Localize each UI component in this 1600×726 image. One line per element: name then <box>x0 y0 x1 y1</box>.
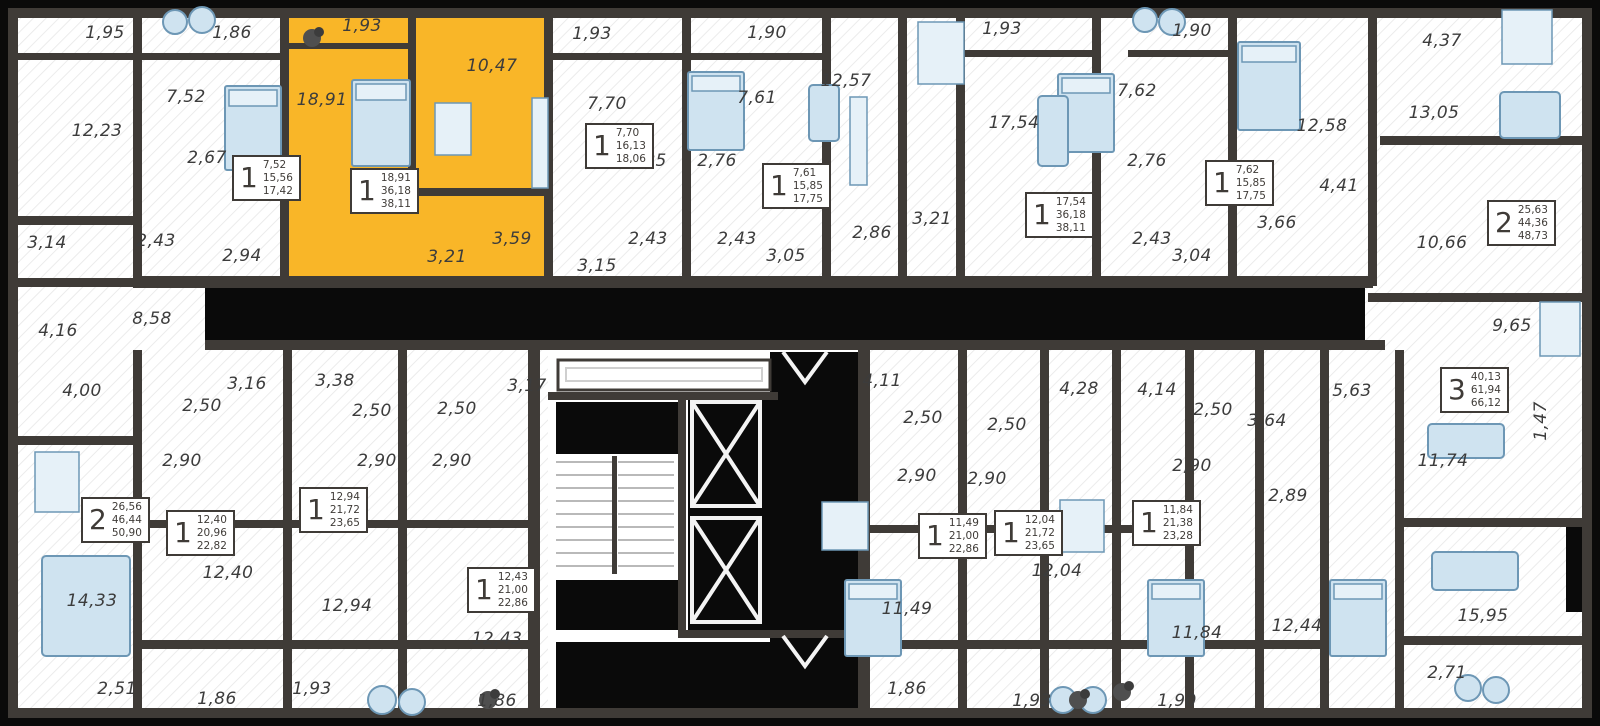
table-icon <box>918 22 964 84</box>
area-value: 23,28 <box>1163 530 1193 543</box>
elevator-icon <box>692 518 760 622</box>
area-value: 12,43 <box>498 571 528 584</box>
bed-icon <box>688 72 744 150</box>
area-value: 61,94 <box>1471 384 1501 397</box>
sofa-icon <box>42 556 130 656</box>
apartment-stat-box[interactable]: 112,4321,0022,86 <box>467 567 536 613</box>
chair-icon <box>1133 8 1157 32</box>
area-value: 15,56 <box>263 172 293 185</box>
room-count: 1 <box>1213 169 1231 197</box>
area-value: 22,82 <box>197 540 227 553</box>
area-value: 17,54 <box>1056 196 1086 209</box>
area-value: 12,94 <box>330 491 360 504</box>
area-value: 17,75 <box>1236 190 1266 203</box>
area-value: 36,18 <box>1056 209 1086 222</box>
area-value: 21,72 <box>1025 527 1055 540</box>
room-count: 1 <box>593 132 611 160</box>
bed-icon <box>845 580 901 656</box>
room-count: 1 <box>1033 201 1051 229</box>
area-value: 12,04 <box>1025 514 1055 527</box>
area-value: 20,96 <box>197 527 227 540</box>
area-value: 17,75 <box>793 193 823 206</box>
area-value: 46,44 <box>112 514 142 527</box>
area-value: 15,85 <box>793 180 823 193</box>
room-count: 1 <box>1002 519 1020 547</box>
area-value: 15,85 <box>1236 177 1266 190</box>
apartment-stat-box[interactable]: 111,8421,3823,28 <box>1132 500 1201 546</box>
area-value: 22,86 <box>949 543 979 556</box>
selected-apartment[interactable] <box>283 8 547 286</box>
area-value: 11,49 <box>949 517 979 530</box>
apartment-stat-box[interactable]: 112,4020,9622,82 <box>166 510 235 556</box>
counter-icon <box>850 97 867 185</box>
area-value: 7,52 <box>263 159 293 172</box>
area-value: 12,40 <box>197 514 227 527</box>
sofa-icon <box>1432 552 1518 590</box>
area-value: 50,90 <box>112 527 142 540</box>
table-icon <box>1540 302 1580 356</box>
area-value: 23,65 <box>330 517 360 530</box>
room-count: 1 <box>1140 509 1158 537</box>
room-count: 1 <box>307 496 325 524</box>
area-value: 18,06 <box>616 153 646 166</box>
area-value: 7,70 <box>616 127 646 140</box>
area-value: 40,13 <box>1471 371 1501 384</box>
sofa-icon <box>809 85 839 141</box>
floorplan-stage: 1,951,861,9310,4718,917,5212,232,673,142… <box>0 0 1600 726</box>
chair-icon <box>399 689 425 715</box>
area-value: 7,61 <box>793 167 823 180</box>
sofa-icon <box>1500 92 1560 138</box>
room-count: 2 <box>89 506 107 534</box>
room-count: 1 <box>926 522 944 550</box>
chair-icon <box>189 7 215 33</box>
apartment-stat-box[interactable]: 117,5436,1838,11 <box>1025 192 1094 238</box>
apartment-stat-box[interactable]: 112,9421,7223,65 <box>299 487 368 533</box>
sofa-icon <box>1428 424 1504 458</box>
area-value: 21,00 <box>949 530 979 543</box>
apartment-stat-box[interactable]: 17,6215,8517,75 <box>1205 160 1274 206</box>
area-value: 16,13 <box>616 140 646 153</box>
table-icon <box>1060 500 1104 552</box>
room-count: 1 <box>770 172 788 200</box>
apartment-stat-box[interactable]: 226,5646,4450,90 <box>81 497 150 543</box>
chair-icon <box>1483 677 1509 703</box>
apartment-stat-box[interactable]: 340,1361,9466,12 <box>1440 367 1509 413</box>
chair-icon <box>1159 9 1185 35</box>
apartment-stat-box[interactable]: 111,4921,0022,86 <box>918 513 987 559</box>
area-value: 21,00 <box>498 584 528 597</box>
chair-icon <box>163 10 187 34</box>
apartment-stat-box[interactable]: 225,6344,3648,73 <box>1487 200 1556 246</box>
table-icon <box>35 452 79 512</box>
area-value: 26,56 <box>112 501 142 514</box>
area-value: 38,11 <box>381 198 411 211</box>
area-value: 48,73 <box>1518 230 1548 243</box>
apartment-stat-box[interactable]: 17,7016,1318,06 <box>585 123 654 169</box>
area-value: 17,42 <box>263 185 293 198</box>
floorplan-drawing <box>0 0 1600 726</box>
bed-icon <box>1330 580 1386 656</box>
table-icon <box>1502 10 1552 64</box>
bed-icon <box>1148 580 1204 656</box>
room-count: 1 <box>174 519 192 547</box>
area-value: 44,36 <box>1518 217 1548 230</box>
apartment-stat-box[interactable]: 112,0421,7223,65 <box>994 510 1063 556</box>
bed-icon <box>1238 42 1300 130</box>
area-value: 23,65 <box>1025 540 1055 553</box>
room-count: 2 <box>1495 209 1513 237</box>
area-value: 22,86 <box>498 597 528 610</box>
apartment-stat-box[interactable]: 17,5215,5617,42 <box>232 155 301 201</box>
area-value: 7,62 <box>1236 164 1266 177</box>
room-count: 1 <box>240 164 258 192</box>
apartment-stat-box[interactable]: 17,6115,8517,75 <box>762 163 831 209</box>
table-icon <box>822 502 868 550</box>
apartment-stat-box-selected[interactable]: 118,9136,1838,11 <box>350 168 419 214</box>
area-value: 25,63 <box>1518 204 1548 217</box>
elevator-icon <box>692 402 760 506</box>
room-count: 3 <box>1448 376 1466 404</box>
chair-icon <box>1455 675 1481 701</box>
sofa-icon <box>1038 96 1068 166</box>
area-value: 11,84 <box>1163 504 1193 517</box>
area-value: 66,12 <box>1471 397 1501 410</box>
chair-icon <box>368 686 396 714</box>
area-value: 21,72 <box>330 504 360 517</box>
area-value: 36,18 <box>381 185 411 198</box>
room-count: 1 <box>475 576 493 604</box>
area-value: 38,11 <box>1056 222 1086 235</box>
area-value: 18,91 <box>381 172 411 185</box>
area-value: 21,38 <box>1163 517 1193 530</box>
room-count: 1 <box>358 177 376 205</box>
